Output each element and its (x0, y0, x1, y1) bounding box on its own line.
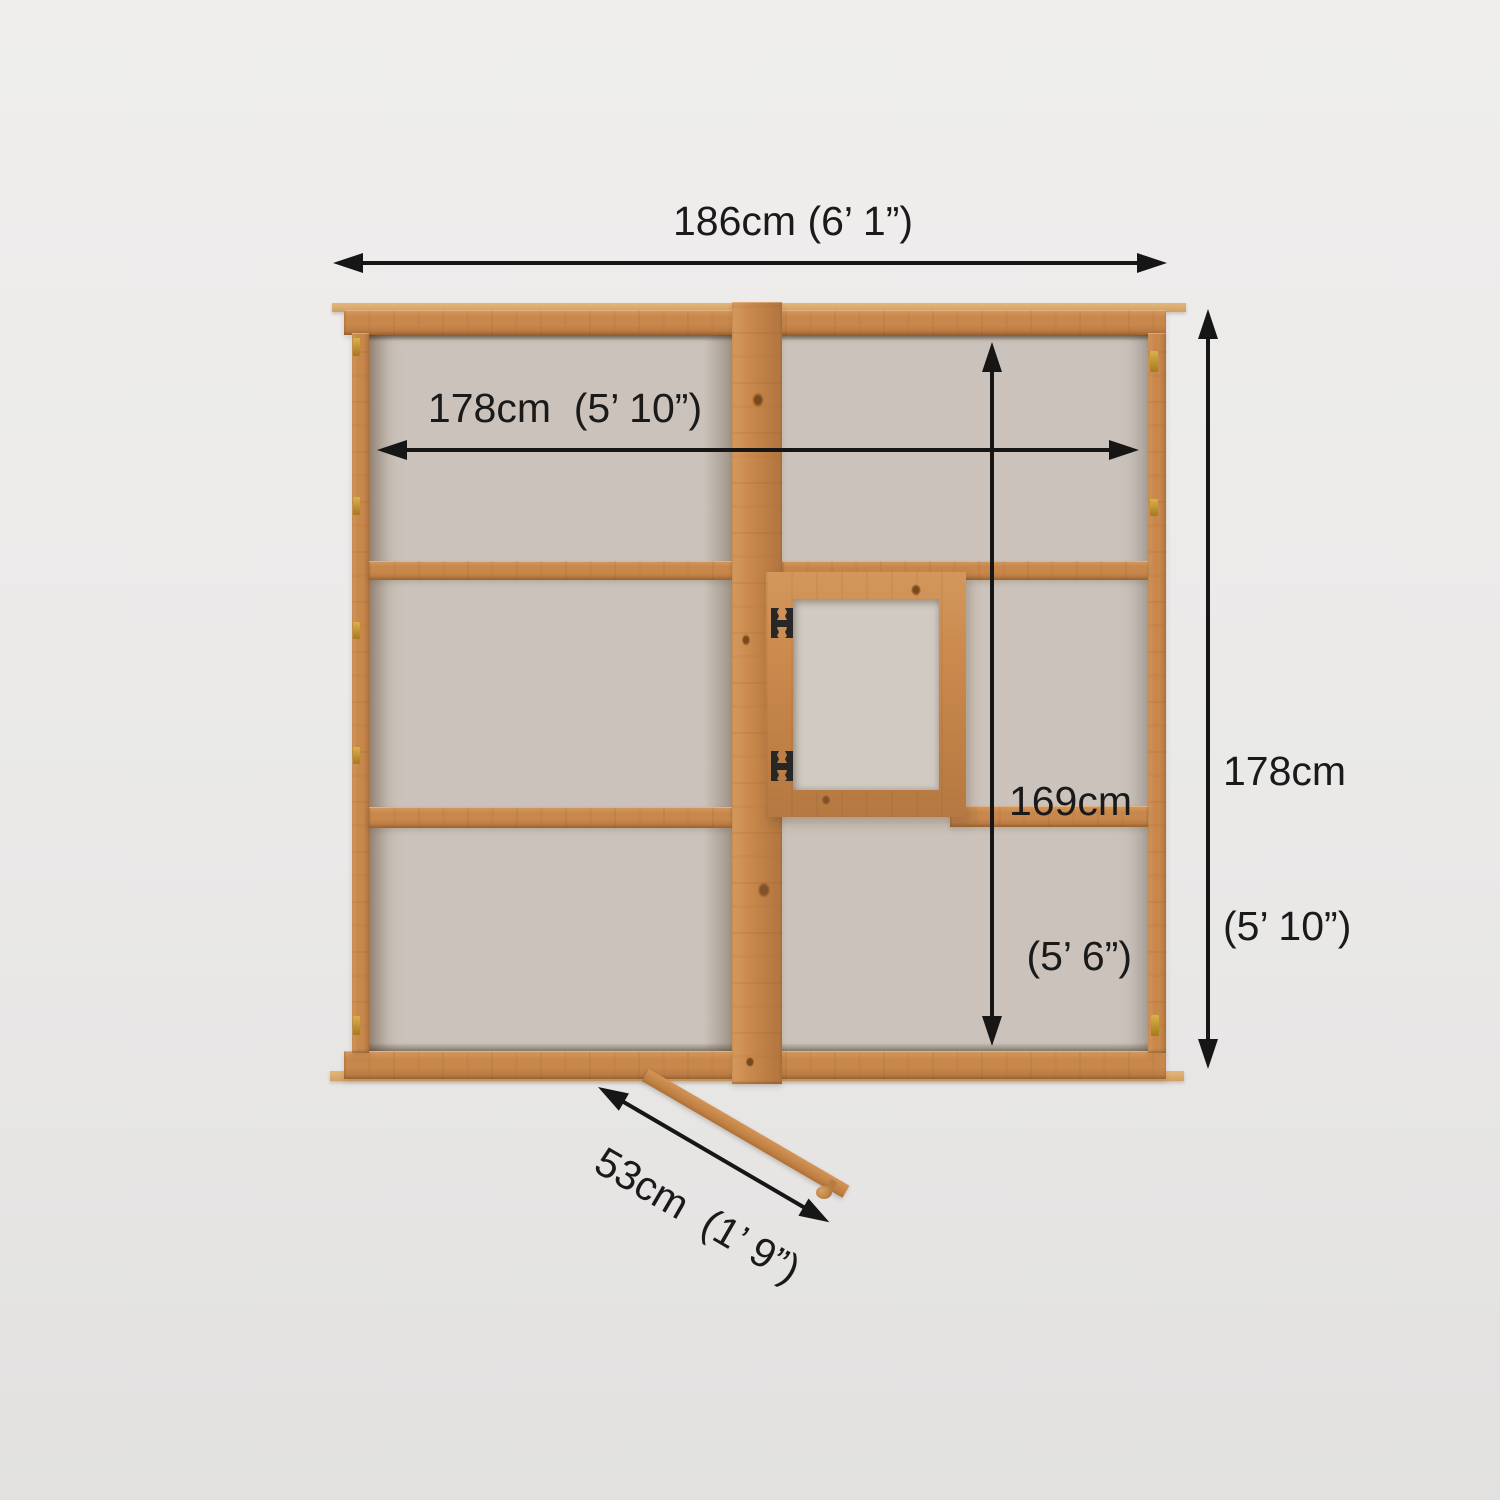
frame-left-stile (352, 333, 369, 1053)
outer-width-dimension-arrow (333, 252, 1167, 274)
arrow-head-left (593, 1078, 629, 1110)
arrow-head-right (1137, 253, 1167, 273)
hinge-pin (1150, 351, 1158, 372)
arrow-head-top (982, 342, 1002, 372)
arrow-shaft (1206, 329, 1210, 1049)
arrow-shaft (397, 448, 1119, 452)
inner-depth-label: 169cm (5’ 6”) (940, 673, 1132, 1086)
vent-window-glass (793, 599, 939, 790)
door-knob (816, 1180, 838, 1200)
hinge-pin (353, 338, 360, 356)
hinge-pin (1151, 1015, 1159, 1036)
inner-depth-metric: 169cm (940, 776, 1132, 828)
hinge-pin (353, 622, 360, 639)
arrow-head-left (333, 253, 363, 273)
left-lower-glazing-bar (369, 807, 732, 828)
h-hinge-icon (770, 607, 794, 639)
vent-window (766, 572, 966, 817)
left-upper-glazing-bar (369, 561, 732, 580)
depth-dimension-arrow (1197, 309, 1219, 1069)
h-hinge-icon (770, 750, 794, 782)
depth-metric: 178cm (1223, 746, 1463, 798)
depth-imperial: (5’ 10”) (1223, 901, 1463, 953)
hinge-pin (353, 497, 360, 515)
hinge-pin (353, 747, 360, 764)
inner-width-label: 178cm (5’ 10”) (400, 383, 730, 435)
depth-label: 178cm (5’ 10”) (1223, 643, 1463, 1056)
greenhouse-plan-diagram: 186cm (6’ 1”) 178cm (5’ 10”) 169cm (5’ 6… (0, 0, 1500, 1500)
door-knob-cap (816, 1186, 832, 1199)
arrow-head-bottom (1198, 1039, 1218, 1069)
hinge-pin (353, 1016, 360, 1035)
arrow-head-top (1198, 309, 1218, 339)
arrow-head-right (1109, 440, 1139, 460)
inner-depth-imperial: (5’ 6”) (940, 931, 1132, 983)
arrow-head-left (377, 440, 407, 460)
frame-right-stile (1148, 333, 1166, 1053)
inner-width-dimension-arrow (377, 439, 1139, 461)
window-hinge-bottom (770, 750, 794, 782)
outer-width-label: 186cm (6’ 1”) (543, 196, 1043, 248)
hinge-pin (1150, 499, 1158, 516)
arrow-shaft (353, 261, 1147, 265)
arrow-head-right (798, 1198, 834, 1230)
window-hinge-top (770, 607, 794, 639)
